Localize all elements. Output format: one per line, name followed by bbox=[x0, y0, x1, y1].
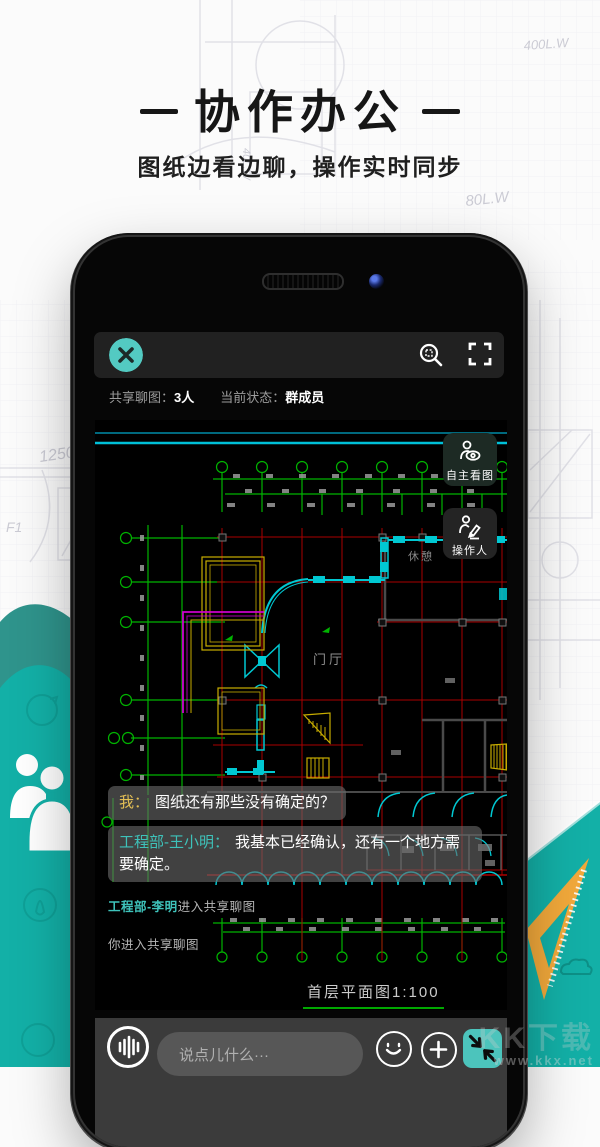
share-count: 3人 bbox=[174, 390, 194, 405]
chat-text: 图纸还有那些没有确定的？ bbox=[155, 794, 335, 811]
sketch-label: F1 bbox=[6, 519, 22, 535]
system-message: 你进入共享聊图 bbox=[108, 934, 199, 953]
collapse-arrows-icon bbox=[463, 1029, 502, 1068]
close-button[interactable] bbox=[109, 338, 143, 372]
state-value: 群成员 bbox=[285, 390, 324, 405]
page-title: 协作办公 bbox=[0, 76, 600, 142]
plus-icon bbox=[423, 1034, 454, 1065]
drawing-title: 首层平面图1:100 bbox=[303, 981, 444, 1009]
title-dash-right bbox=[422, 109, 460, 114]
free-view-label: 自主看图 bbox=[446, 470, 494, 482]
state-label: 当前状态： bbox=[220, 390, 285, 405]
voice-button[interactable] bbox=[107, 1026, 149, 1068]
message-input[interactable] bbox=[177, 1032, 341, 1078]
chat-sender: 工程部-王小明： bbox=[119, 834, 229, 851]
cad-lounge-label: 休憩 bbox=[408, 549, 434, 563]
teal-shape-right bbox=[523, 780, 600, 1067]
person-pencil-icon bbox=[457, 514, 483, 540]
chat-message: 我：图纸还有那些没有确定的？ bbox=[108, 786, 346, 820]
free-view-button[interactable]: 自主看图 bbox=[443, 433, 497, 486]
chat-input-bar bbox=[95, 1018, 507, 1147]
viewer-toolbar bbox=[94, 332, 504, 378]
system-message-user: 工程部-李明 bbox=[108, 900, 178, 914]
share-label: 共享聊图： bbox=[109, 390, 174, 405]
zoom-select-icon[interactable] bbox=[417, 341, 445, 369]
operator-label: 操作人 bbox=[452, 545, 488, 557]
emoji-button[interactable] bbox=[376, 1031, 412, 1067]
chat-message: 工程部-王小明：我基本已经确认，还有一个地方需要确定。 bbox=[108, 826, 482, 882]
waveform-icon bbox=[110, 1029, 146, 1065]
phone-speaker bbox=[262, 273, 344, 290]
session-status: 共享聊图：3人当前状态：群成员 bbox=[109, 387, 324, 406]
teal-shape-left bbox=[0, 560, 85, 1067]
person-eye-icon bbox=[457, 439, 483, 465]
chat-sender: 我： bbox=[119, 794, 149, 811]
cad-hall-label: 门厅 bbox=[313, 652, 345, 667]
phone-camera bbox=[369, 274, 384, 289]
smiley-icon bbox=[378, 1033, 409, 1064]
system-message: 工程部-李明进入共享聊图 bbox=[108, 896, 256, 915]
message-input-pill[interactable] bbox=[157, 1032, 363, 1076]
fullscreen-icon[interactable] bbox=[467, 341, 493, 367]
page-subtitle: 图纸边看边聊，操作实时同步 bbox=[0, 148, 600, 182]
collapse-button[interactable] bbox=[463, 1029, 502, 1068]
add-button[interactable] bbox=[421, 1032, 457, 1068]
title-dash-left bbox=[140, 109, 178, 114]
cad-canvas[interactable]: 门厅 休憩 bbox=[95, 420, 507, 1010]
phone-mockup: 共享聊图：3人当前状态：群成员 bbox=[75, 237, 523, 1147]
operator-button[interactable]: 操作人 bbox=[443, 508, 497, 559]
